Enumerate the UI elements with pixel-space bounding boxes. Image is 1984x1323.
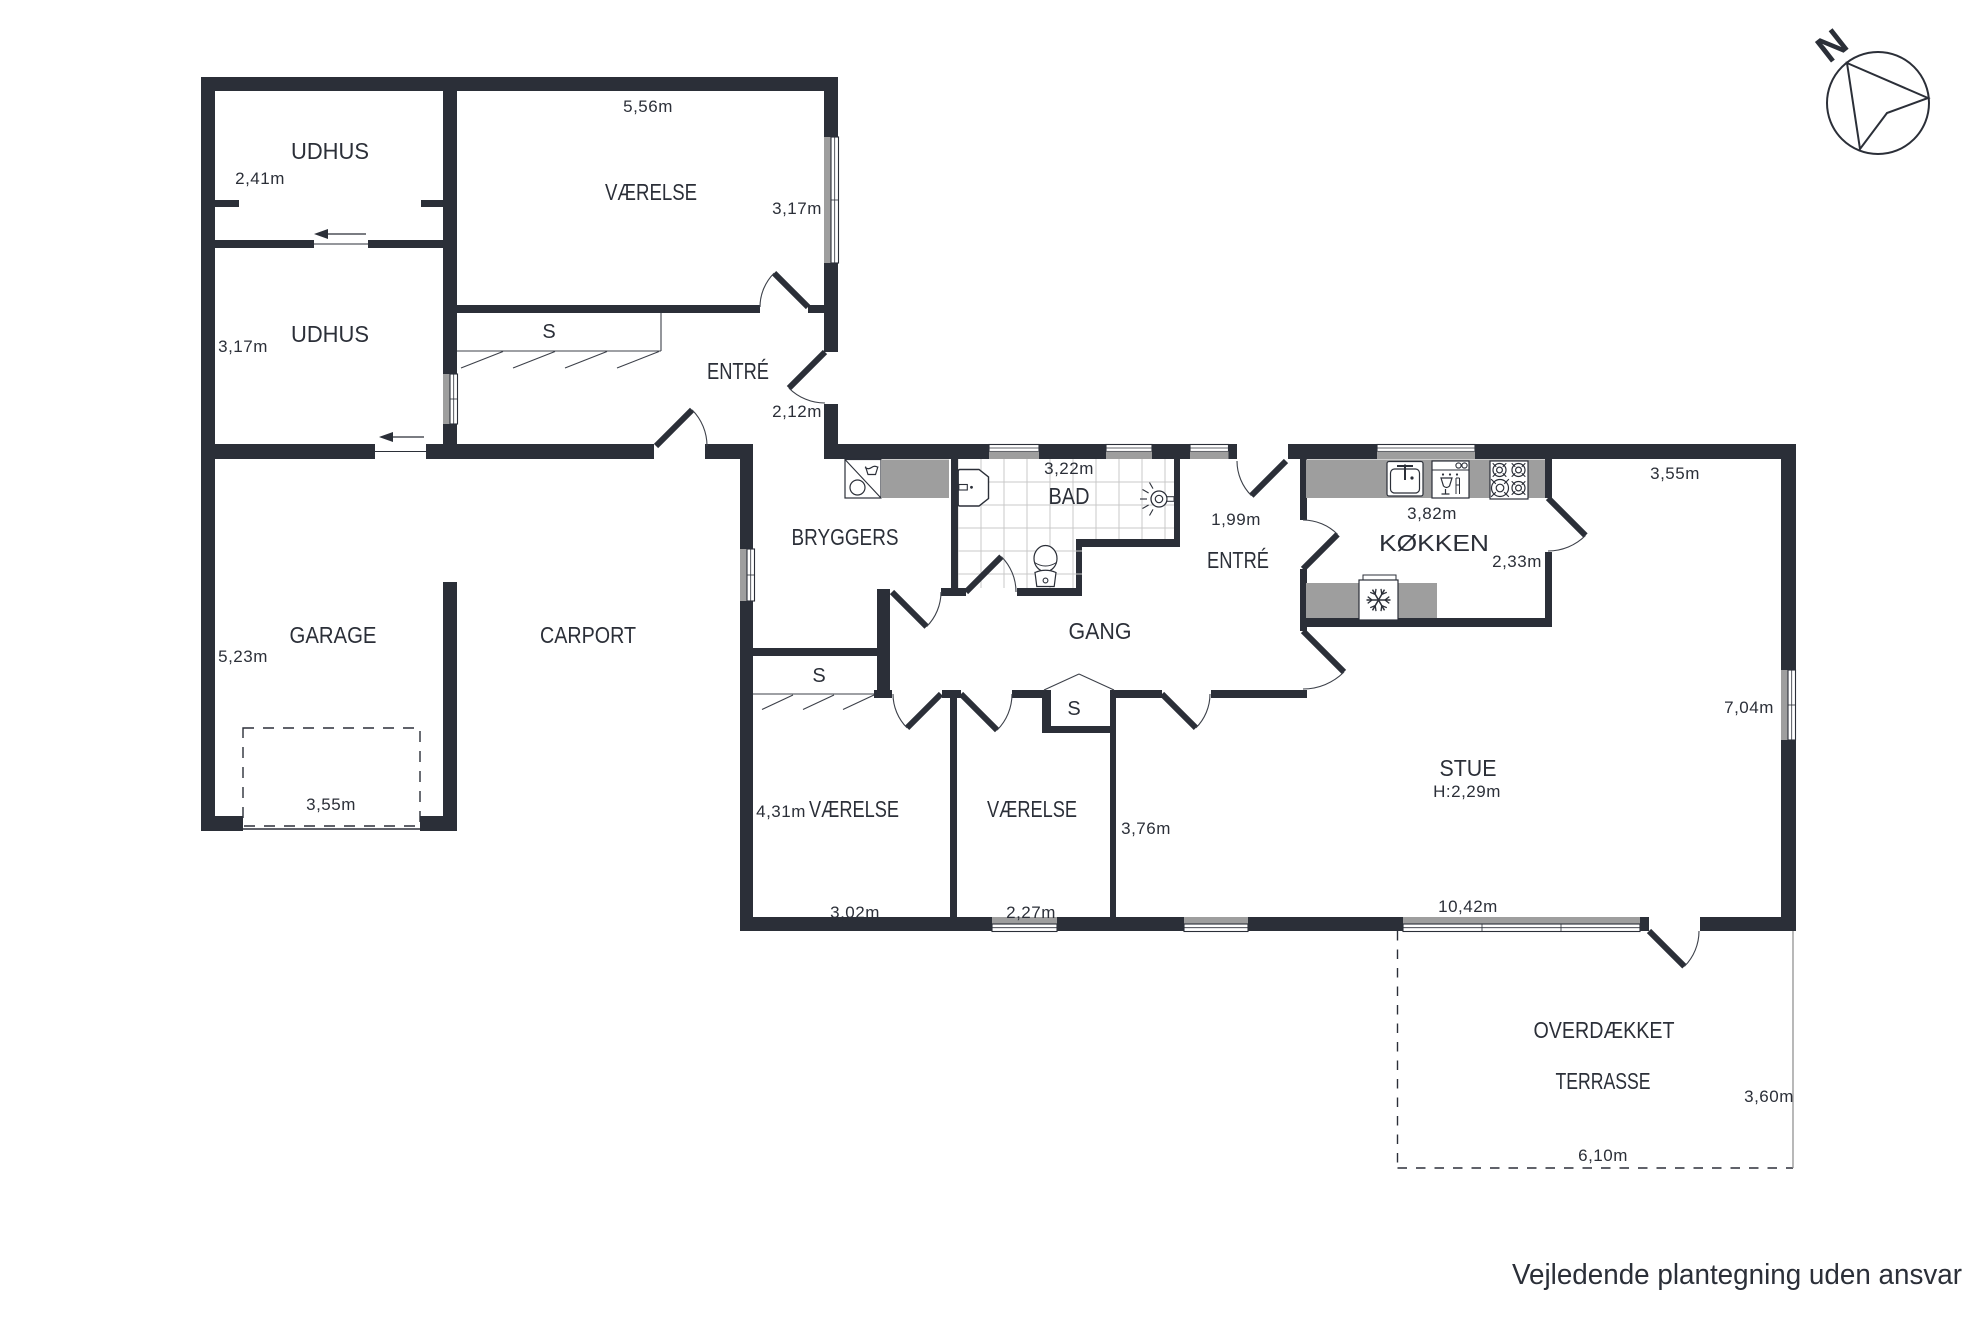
svg-text:Vejledende plantegning uden an: Vejledende plantegning uden ansvar	[1512, 1259, 1962, 1291]
svg-text:VÆRELSE: VÆRELSE	[605, 179, 697, 205]
svg-text:TERRASSE: TERRASSE	[1556, 1068, 1651, 1094]
svg-text:5,56m: 5,56m	[623, 97, 673, 116]
svg-text:OVERDÆKKET: OVERDÆKKET	[1534, 1017, 1675, 1043]
svg-text:3,76m: 3,76m	[1121, 819, 1171, 838]
svg-text:3,55m: 3,55m	[1650, 464, 1700, 483]
svg-text:5,23m: 5,23m	[218, 647, 268, 666]
svg-text:3,17m: 3,17m	[218, 337, 268, 356]
svg-text:2,33m: 2,33m	[1492, 552, 1542, 571]
svg-text:3,02m: 3,02m	[830, 903, 880, 922]
svg-text:UDHUS: UDHUS	[291, 138, 369, 164]
svg-text:S: S	[1067, 698, 1080, 720]
svg-text:H:2,29m: H:2,29m	[1433, 782, 1501, 801]
svg-text:ENTRÉ: ENTRÉ	[1207, 547, 1269, 573]
svg-text:VÆRELSE: VÆRELSE	[809, 796, 899, 822]
svg-text:3,82m: 3,82m	[1407, 504, 1457, 523]
svg-text:3,60m: 3,60m	[1744, 1087, 1794, 1106]
svg-text:7,04m: 7,04m	[1724, 698, 1774, 717]
svg-text:1,99m: 1,99m	[1211, 510, 1261, 529]
svg-text:6,10m: 6,10m	[1578, 1146, 1628, 1165]
svg-text:STUE: STUE	[1440, 755, 1497, 781]
svg-text:GARAGE: GARAGE	[290, 622, 377, 648]
svg-text:ENTRÉ: ENTRÉ	[707, 358, 769, 384]
svg-text:GANG: GANG	[1069, 618, 1132, 644]
svg-text:S: S	[542, 321, 555, 343]
svg-text:CARPORT: CARPORT	[540, 622, 636, 648]
svg-text:2,27m: 2,27m	[1006, 903, 1056, 922]
svg-text:KØKKEN: KØKKEN	[1379, 530, 1489, 556]
svg-text:4,31m: 4,31m	[756, 802, 806, 821]
svg-text:3,17m: 3,17m	[772, 199, 822, 218]
svg-text:3,55m: 3,55m	[306, 795, 356, 814]
svg-text:2,41m: 2,41m	[235, 169, 285, 188]
svg-text:UDHUS: UDHUS	[291, 321, 369, 347]
svg-text:S: S	[812, 665, 825, 687]
svg-text:BAD: BAD	[1049, 483, 1090, 509]
svg-text:BRYGGERS: BRYGGERS	[792, 524, 899, 550]
svg-text:10,42m: 10,42m	[1438, 897, 1498, 916]
svg-text:2,12m: 2,12m	[772, 402, 822, 421]
svg-text:3,22m: 3,22m	[1044, 459, 1094, 478]
svg-text:VÆRELSE: VÆRELSE	[987, 796, 1077, 822]
